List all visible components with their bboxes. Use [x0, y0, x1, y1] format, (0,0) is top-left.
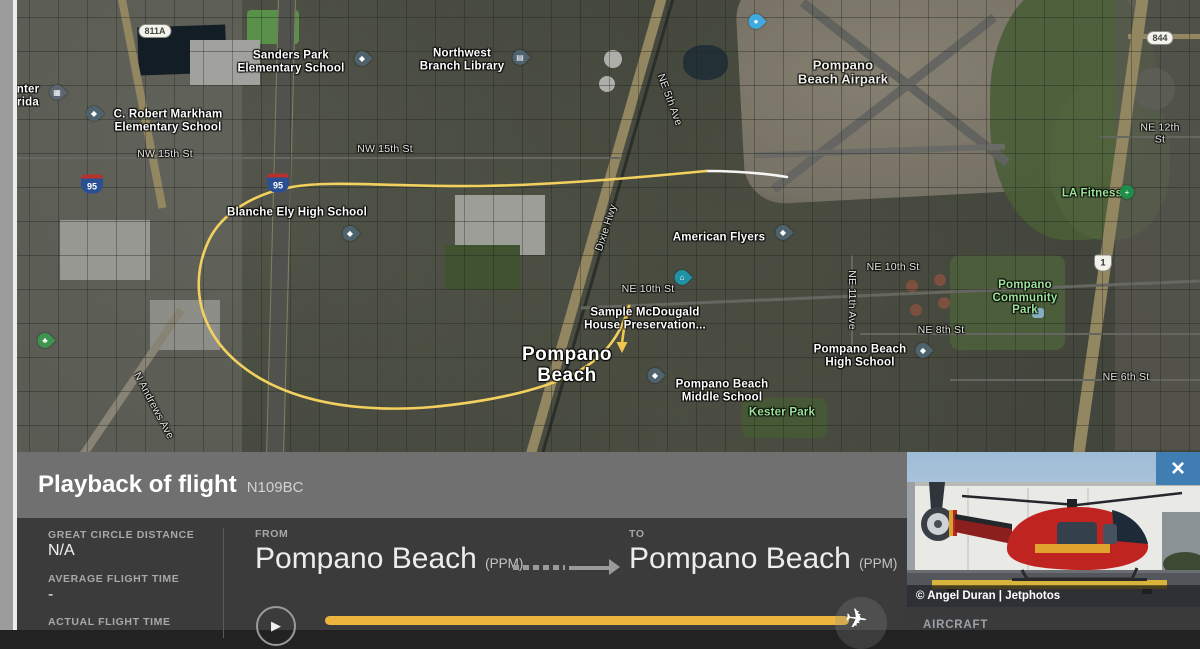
- poi-label-clipped-left[interactable]: nter rida: [17, 83, 40, 108]
- route-shield-811a: 811A: [138, 24, 171, 38]
- stat-label-avg-time: AVERAGE FLIGHT TIME: [48, 573, 179, 585]
- route-shield-844: 844: [1146, 31, 1173, 45]
- graduation-cap-icon: ◆: [343, 226, 358, 241]
- plane-slider-handle[interactable]: ✈: [843, 603, 870, 637]
- house-icon: ⌂: [675, 270, 690, 285]
- graduation-cap-icon: ◆: [87, 106, 102, 121]
- dropped-pin[interactable]: ●: [745, 11, 766, 32]
- playback-panel-body: GREAT CIRCLE DISTANCE N/A AVERAGE FLIGHT…: [17, 518, 907, 630]
- play-icon: ▶: [271, 618, 281, 634]
- poi-label-pompano-middle[interactable]: Pompano Beach Middle School: [676, 378, 769, 403]
- gym-pin-la-fitness[interactable]: +: [1120, 185, 1134, 199]
- poi-label-pompano-high[interactable]: Pompano Beach High School: [814, 343, 907, 368]
- playback-progress-bar[interactable]: [325, 616, 849, 625]
- flight-tail-number: N109BC: [247, 475, 304, 496]
- stat-value-avg-time: -: [48, 586, 53, 604]
- interstate-shield-95: 95: [267, 174, 289, 193]
- poi-label-sanders-park[interactable]: Sanders Park Elementary School: [238, 49, 345, 74]
- graduation-cap-icon: ◆: [916, 343, 931, 358]
- school-pin-pompano-middle[interactable]: ◆: [644, 365, 665, 386]
- museum-pin-mcdougald[interactable]: ⌂: [671, 267, 692, 288]
- poi-label-blanche-ely[interactable]: Blanche Ely High School: [227, 207, 367, 220]
- street-label-ne10-east: NE 10th St: [867, 262, 920, 274]
- street-label-ne10-west: NE 10th St: [622, 284, 675, 296]
- school-pin-sanders[interactable]: ◆: [351, 48, 372, 69]
- book-icon: ▤: [513, 50, 528, 65]
- stat-label-distance: GREAT CIRCLE DISTANCE: [48, 529, 194, 541]
- aircraft-section: AIRCRAFT: [907, 607, 1200, 630]
- street-label-ne11ave: NE 11th Ave: [845, 270, 857, 330]
- school-pin-markham[interactable]: ◆: [83, 103, 104, 124]
- school-pin-american-flyers[interactable]: ◆: [772, 222, 793, 243]
- to-label: TO: [629, 528, 645, 540]
- street-label-nw15-east: NW 15th St: [357, 144, 413, 156]
- school-pin-blanche-ely[interactable]: ◆: [339, 223, 360, 244]
- from-label: FROM: [255, 528, 288, 540]
- building-pin[interactable]: ▦: [46, 82, 67, 103]
- poi-label-mcdougald-house[interactable]: Sample McDougald House Preservation...: [584, 306, 706, 331]
- street-ne8: [860, 333, 1200, 335]
- page-edge-gray: [0, 0, 13, 630]
- street-ne6: [950, 379, 1200, 381]
- graduation-cap-icon: ◆: [648, 368, 663, 383]
- stats-divider: [223, 528, 224, 638]
- panel-title: Playback of flight: [38, 471, 237, 499]
- library-pin-northwest[interactable]: ▤: [509, 47, 530, 68]
- close-photo-button[interactable]: ×: [1156, 452, 1200, 485]
- to-city: Pompano Beach (PPM): [629, 542, 897, 576]
- to-city-name: Pompano Beach: [629, 542, 851, 575]
- from-city: Pompano Beach (PPM): [255, 542, 523, 576]
- from-city-name: Pompano Beach: [255, 542, 477, 575]
- city-label-pompano-beach: Pompano Beach: [522, 345, 612, 387]
- ball-diamond-2: [934, 274, 946, 286]
- playback-panel-header: Playback of flight N109BC: [17, 452, 907, 518]
- play-button[interactable]: ▶: [256, 606, 296, 646]
- aircraft-section-label: AIRCRAFT: [923, 619, 988, 631]
- poi-label-markham-school[interactable]: C. Robert Markham Elementary School: [114, 108, 223, 133]
- stat-label-actual-time: ACTUAL FLIGHT TIME: [48, 616, 171, 628]
- school-pin-pompano-high[interactable]: ◆: [912, 340, 933, 361]
- poi-label-northwest-library[interactable]: Northwest Branch Library: [420, 47, 505, 72]
- street-label-ne8: NE 8th St: [918, 325, 965, 337]
- stat-value-distance: N/A: [48, 542, 75, 560]
- dumbbell-icon: +: [1125, 188, 1130, 197]
- poi-label-american-flyers[interactable]: American Flyers: [673, 232, 766, 245]
- poi-label-la-fitness[interactable]: LA Fitness: [1062, 188, 1122, 201]
- graduation-cap-icon: ◆: [776, 225, 791, 240]
- street-nw15: [17, 157, 620, 159]
- photo-credit: © Angel Duran | Jetphotos: [907, 590, 1060, 602]
- warehouse-2: [60, 220, 150, 280]
- park-label-community-park[interactable]: Pompano Community Park: [992, 279, 1057, 317]
- street-label-ne6: NE 6th St: [1103, 372, 1150, 384]
- dot-icon: ●: [749, 14, 764, 29]
- tank-1: [604, 50, 622, 68]
- street-label-ne12: NE 12th St: [1140, 122, 1180, 145]
- airport-label-pompano-airpark[interactable]: Pompano Beach Airpark: [798, 59, 888, 88]
- ball-diamond-1: [906, 280, 918, 292]
- street-label-nw15-west: NW 15th St: [137, 149, 193, 161]
- tree-icon: ♣: [38, 333, 53, 348]
- route-arrow-icon: [609, 559, 620, 575]
- ball-diamond-3: [910, 304, 922, 316]
- to-airport-code: (PPM): [859, 556, 897, 571]
- park-pin-tree[interactable]: ♣: [34, 330, 55, 351]
- graduation-cap-icon: ◆: [355, 51, 370, 66]
- lake-east: [683, 45, 728, 80]
- ball-diamond-4: [938, 297, 950, 309]
- route-arrow-line: [569, 566, 611, 570]
- route-dots: [513, 565, 565, 570]
- park-label-kester[interactable]: Kester Park: [749, 407, 815, 420]
- us-route-shield-1: 1: [1094, 255, 1112, 272]
- building-icon: ▦: [50, 85, 65, 100]
- school-field: [445, 245, 520, 290]
- tank-2: [599, 76, 615, 92]
- photo-caption-bar: © Angel Duran | Jetphotos: [907, 585, 1200, 607]
- interstate-shield-95-west: 95: [81, 175, 103, 194]
- page-edge-white: [13, 0, 17, 630]
